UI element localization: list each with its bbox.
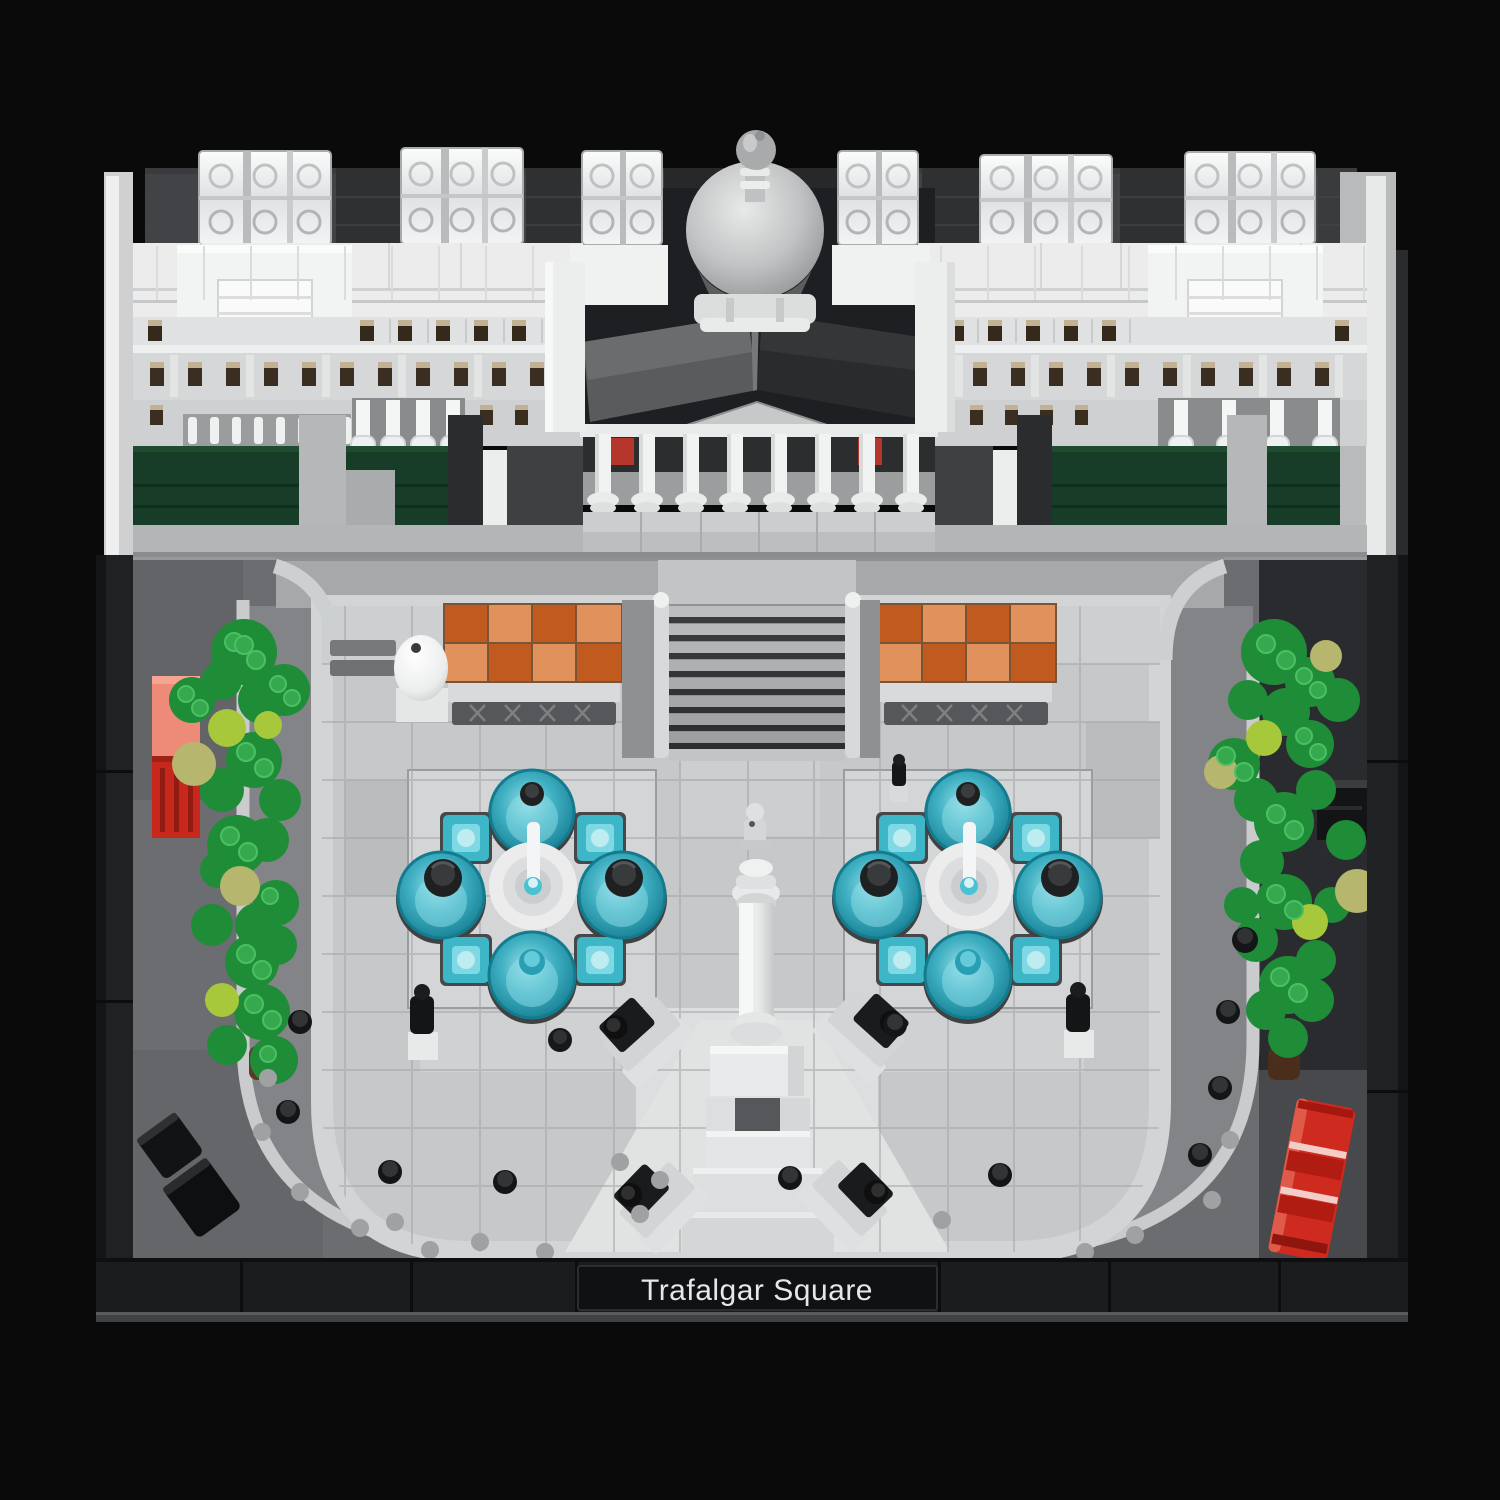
svg-text:Trafalgar Square: Trafalgar Square (641, 1274, 873, 1307)
